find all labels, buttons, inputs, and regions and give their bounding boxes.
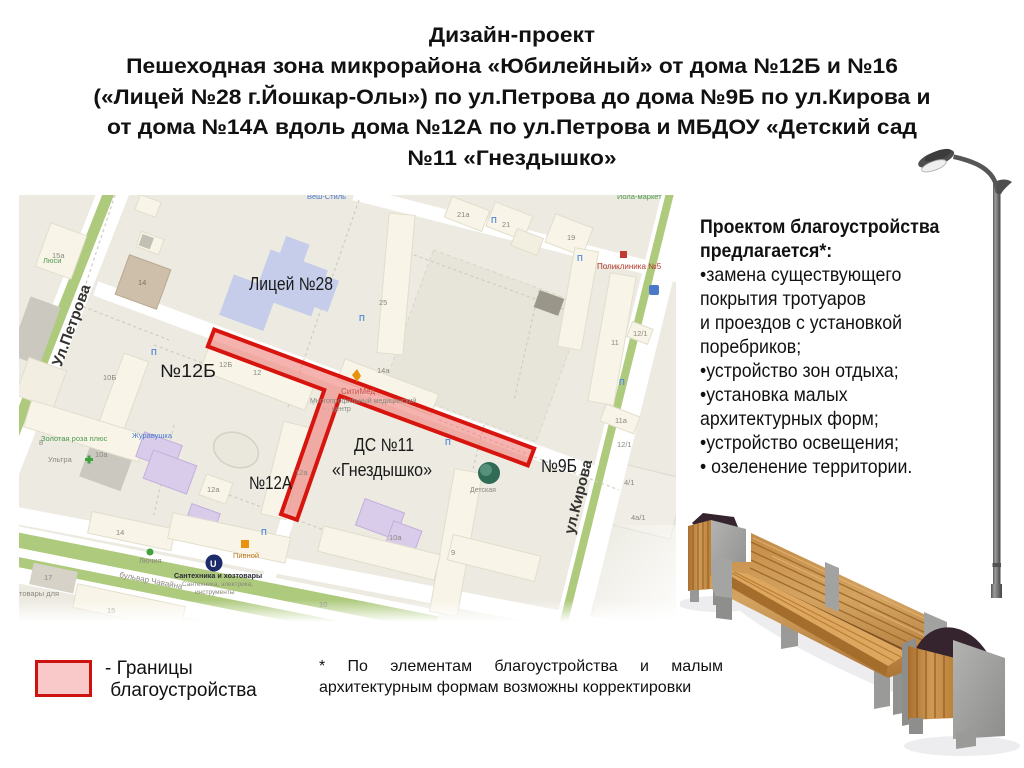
svg-text:СитиМед: СитиМед xyxy=(341,387,375,396)
svg-text:10а: 10а xyxy=(95,450,108,459)
svg-text:12: 12 xyxy=(253,368,261,377)
svg-text:Поликлиника №5: Поликлиника №5 xyxy=(597,262,662,271)
svg-text:№12Б: №12Б xyxy=(160,361,216,381)
svg-text:Журавушка: Журавушка xyxy=(132,431,173,440)
svg-text:Лючия: Лючия xyxy=(139,556,162,565)
svg-text:Люси: Люси xyxy=(43,256,62,265)
svg-text:центр: центр xyxy=(332,406,351,413)
svg-text:П: П xyxy=(151,348,157,357)
svg-text:21: 21 xyxy=(502,220,510,229)
svg-text:Сантехника, электрика,: Сантехника, электрика, xyxy=(182,581,253,588)
svg-text:Пивной: Пивной xyxy=(233,551,259,560)
svg-text:12Б: 12Б xyxy=(219,360,232,369)
svg-text:14а: 14а xyxy=(377,366,390,375)
svg-text:4а/1: 4а/1 xyxy=(631,513,646,522)
svg-text:12а: 12а xyxy=(295,468,308,477)
svg-text:14: 14 xyxy=(138,278,146,287)
svg-text:9: 9 xyxy=(451,548,455,557)
svg-text:12/1: 12/1 xyxy=(633,329,648,338)
svg-text:№12А: №12А xyxy=(249,473,292,493)
svg-text:№9Б: №9Б xyxy=(541,456,577,476)
svg-text:21а: 21а xyxy=(457,210,470,219)
svg-text:П: П xyxy=(359,314,365,323)
svg-text:товары для: товары для xyxy=(19,589,59,598)
svg-text:10а: 10а xyxy=(389,533,402,542)
svg-text:ДС №11: ДС №11 xyxy=(354,435,414,455)
svg-text:11: 11 xyxy=(611,338,619,347)
svg-text:П: П xyxy=(445,438,451,447)
svg-text:12/1: 12/1 xyxy=(617,440,632,449)
svg-text:Веш-Стиль: Веш-Стиль xyxy=(307,195,346,201)
svg-text:U: U xyxy=(210,559,217,569)
svg-text:10Б: 10Б xyxy=(103,373,116,382)
svg-text:П: П xyxy=(577,254,583,263)
svg-text:Иола-маркет: Иола-маркет xyxy=(617,195,662,201)
svg-text:Детская: Детская xyxy=(470,487,496,494)
svg-text:Ультра: Ультра xyxy=(48,455,73,464)
svg-text:11а: 11а xyxy=(615,416,628,425)
svg-text:Золотая роза плюс: Золотая роза плюс xyxy=(41,434,108,443)
svg-text:П: П xyxy=(261,528,267,537)
svg-text:14: 14 xyxy=(116,528,124,537)
svg-text:4/1: 4/1 xyxy=(624,478,634,487)
svg-text:25: 25 xyxy=(379,298,387,307)
svg-text:Лицей №28: Лицей №28 xyxy=(249,274,333,294)
svg-text:П: П xyxy=(619,378,625,387)
svg-text:17: 17 xyxy=(44,573,52,582)
svg-text:«Гнездышко»: «Гнездышко» xyxy=(332,460,432,480)
svg-text:инструменты: инструменты xyxy=(195,589,235,596)
svg-text:Многопрофильный медицинский: Многопрофильный медицинский xyxy=(310,397,416,405)
svg-text:П: П xyxy=(491,216,497,225)
svg-text:12а: 12а xyxy=(207,485,220,494)
svg-text:19: 19 xyxy=(567,233,575,242)
svg-text:Сантехника и хозтовары: Сантехника и хозтовары xyxy=(174,571,262,580)
